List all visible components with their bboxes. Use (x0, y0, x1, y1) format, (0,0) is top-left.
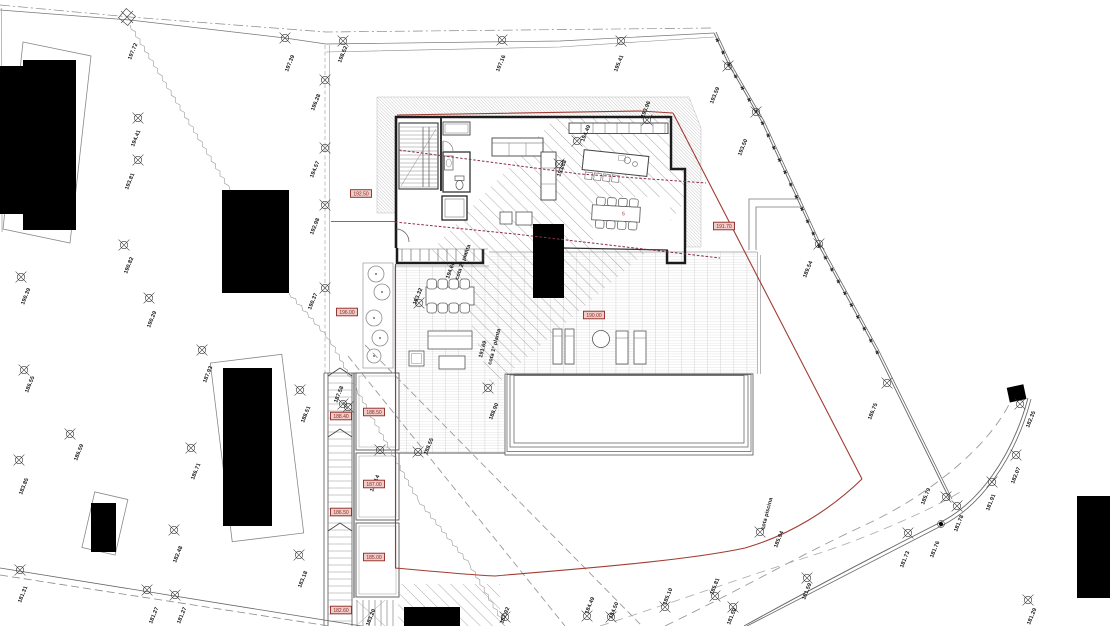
svg-text:186.50: 186.50 (333, 510, 349, 516)
svg-text:196.00: 196.00 (339, 310, 355, 316)
svg-text:185.00: 185.00 (366, 555, 382, 561)
svg-text:191.70: 191.70 (716, 224, 732, 230)
svg-text:182.60: 182.60 (333, 608, 349, 614)
svg-text:5: 5 (622, 211, 625, 217)
svg-text:187.00: 187.00 (366, 482, 382, 488)
svg-text:190.00: 190.00 (586, 313, 602, 319)
svg-text:188.40: 188.40 (333, 414, 349, 420)
svg-text:188.50: 188.50 (366, 410, 382, 416)
svg-text:192.50: 192.50 (353, 191, 369, 197)
